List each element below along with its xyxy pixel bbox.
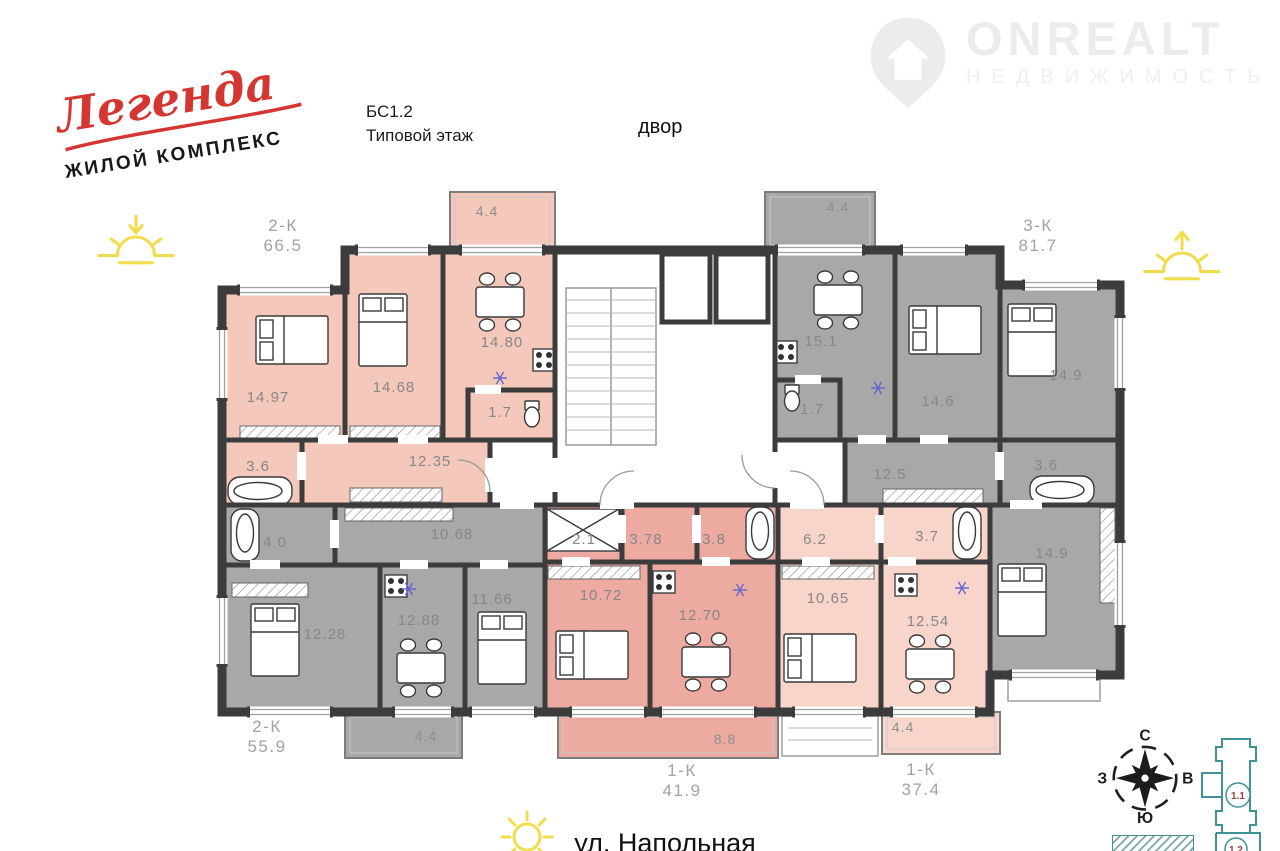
- door-opening: [920, 435, 948, 444]
- bed-v-furniture-icon: [998, 564, 1046, 636]
- room-area-label: 14.9: [1035, 545, 1068, 562]
- stove-icon: [385, 575, 407, 597]
- window: [795, 707, 863, 718]
- entrance-porch: [782, 716, 878, 756]
- door-opening: [617, 515, 626, 543]
- bath-v-furniture-icon: [746, 507, 774, 559]
- wc-furniture-icon: [785, 385, 800, 411]
- window: [462, 245, 542, 256]
- room-area-label: 6.2: [803, 531, 827, 548]
- block-label: БС1.2: [366, 100, 473, 124]
- door-opening: [858, 435, 886, 444]
- onrealt-watermark: ONREALT НЕДВИЖИМОСТЬ: [862, 14, 1271, 112]
- apartment-total-area-label: 55.9: [247, 737, 286, 756]
- door-opening: [600, 500, 634, 509]
- window: [778, 245, 862, 256]
- wc-furniture-icon: [525, 401, 540, 427]
- balcony-area-label: 4.4: [476, 203, 498, 219]
- room-area-label: 12.70: [679, 607, 722, 624]
- bed-v-furniture-icon: [359, 294, 407, 366]
- window: [358, 245, 428, 256]
- apartment-total-area-label: 81.7: [1018, 236, 1057, 255]
- room-area-label: 1.7: [488, 404, 512, 421]
- door-opening: [250, 560, 280, 569]
- door-swing-arc: [790, 471, 824, 505]
- bed-v-furniture-icon: [478, 612, 526, 684]
- door-opening: [790, 500, 824, 509]
- wardrobe-hatch: [345, 508, 453, 521]
- apartment-type-label: 1-К: [667, 761, 697, 780]
- bed-h-furniture-icon: [256, 316, 328, 364]
- sun-south-icon: [494, 806, 560, 851]
- site-neighbour-block: [1112, 835, 1194, 851]
- window: [903, 245, 965, 256]
- room-area-label: 12.5: [873, 466, 906, 483]
- door-opening: [400, 560, 428, 569]
- room-area-label: 14.80: [481, 334, 524, 351]
- room-area-label: 11.66: [471, 591, 512, 608]
- bath-v-furniture-icon: [231, 509, 259, 561]
- wardrobe-hatch: [232, 583, 308, 597]
- door-opening: [398, 435, 428, 444]
- rear-balcony-ledge: [1008, 679, 1100, 701]
- site-section-next: 1.2: [1229, 845, 1243, 851]
- room-area-label: 14.6: [921, 393, 954, 410]
- door-opening: [500, 500, 534, 509]
- apartment-total-area-label: 66.5: [263, 236, 302, 255]
- bed-h-furniture-icon: [909, 306, 981, 354]
- room-area-label: 14.68: [373, 379, 416, 396]
- apartment-type-label: 2-К: [268, 216, 298, 235]
- courtyard-label: двор: [638, 116, 682, 139]
- room-area-label: 2.1: [572, 531, 596, 548]
- balcony-area-label: 8.8: [714, 731, 736, 747]
- door-opening: [330, 520, 339, 548]
- door-opening: [1010, 500, 1042, 509]
- room-area-label: 3.6: [1034, 457, 1058, 474]
- room-area-label: 10.65: [807, 590, 850, 607]
- window: [1115, 318, 1126, 388]
- door-opening: [995, 452, 1004, 480]
- floor-type-label: Типовой этаж: [366, 124, 473, 148]
- room-area-label: 12.35: [409, 453, 452, 470]
- apartment-total-area-label: 41.9: [662, 781, 701, 800]
- floorplan-page: 14.9714.6814.801.712.353.64.42-К66.515.1…: [0, 0, 1280, 851]
- onrealt-pin-icon: [862, 14, 954, 112]
- sunset-west-icon: [96, 204, 176, 270]
- stove-icon: [775, 341, 797, 363]
- room-area-label: 3.78: [629, 531, 662, 548]
- wardrobe-hatch: [548, 566, 640, 579]
- street-label: ул. Напольная: [520, 828, 810, 851]
- window: [893, 707, 975, 718]
- door-opening: [480, 560, 508, 569]
- balcony-2k-55: [345, 712, 462, 758]
- apartment-total-area-label: 37.4: [901, 780, 940, 799]
- sunrise-east-icon: [1142, 220, 1222, 286]
- door-opening: [692, 515, 701, 543]
- room-area-label: 10.72: [580, 587, 623, 604]
- bath-h-furniture-icon: [228, 477, 292, 505]
- room-area-label: 14.97: [247, 389, 290, 406]
- bed-v-furniture-icon: [251, 604, 299, 676]
- wardrobe-hatch: [782, 566, 874, 579]
- window: [572, 707, 644, 718]
- window: [217, 330, 228, 398]
- door-opening: [875, 515, 884, 543]
- door-opening: [475, 385, 501, 394]
- door-opening: [550, 458, 559, 492]
- site-key-plan: 1.1 1.2: [1192, 737, 1280, 851]
- door-opening: [888, 557, 916, 566]
- balcony-area-label: 4.4: [892, 719, 914, 735]
- bed-h-furniture-icon: [556, 631, 628, 679]
- window: [240, 285, 330, 296]
- wardrobe-hatch: [1100, 508, 1115, 603]
- window: [1115, 543, 1126, 625]
- room-area-label: 3.6: [246, 458, 270, 475]
- window: [395, 707, 451, 718]
- balcony-3k-81: [765, 192, 875, 250]
- door-opening: [318, 435, 348, 444]
- stove-icon: [653, 571, 675, 593]
- bath-v-furniture-icon: [953, 507, 981, 559]
- compass-rose: С В Ю З: [1095, 724, 1195, 824]
- elevator-shaft: [662, 254, 710, 322]
- bed-h-furniture-icon: [784, 634, 856, 682]
- apartment-type-label: 2-К: [252, 717, 282, 736]
- room-area-label: 12.88: [398, 612, 441, 629]
- plan-info: БС1.2 Типовой этаж: [366, 100, 473, 148]
- bath-h-furniture-icon: [1030, 476, 1094, 504]
- stove-icon: [533, 349, 555, 371]
- room-area-label: 12.28: [304, 626, 347, 643]
- apartment-type-label: 1-К: [906, 760, 936, 779]
- watermark-subtitle: НЕДВИЖИМОСТЬ: [966, 66, 1271, 89]
- window: [217, 598, 228, 664]
- door-opening: [795, 375, 821, 384]
- room-area-label: 4.0: [263, 534, 287, 551]
- room-area-label: 15.1: [804, 333, 837, 350]
- watermark-brand: ONREALT: [966, 14, 1271, 63]
- compass-north: С: [1139, 728, 1150, 745]
- door-opening: [702, 557, 730, 566]
- stove-icon: [895, 574, 917, 596]
- site-section-current: 1.1: [1231, 791, 1245, 802]
- wardrobe-hatch: [350, 488, 442, 502]
- room-area-label: 3.8: [702, 531, 726, 548]
- window: [472, 707, 534, 718]
- room-area-label: 14.9: [1049, 367, 1082, 384]
- window: [662, 707, 754, 718]
- balcony-2k-66: [450, 192, 555, 250]
- wardrobe-hatch: [883, 489, 983, 504]
- balcony-1k-41: [558, 712, 778, 758]
- door-swing-arc: [600, 471, 634, 505]
- apartment-type-label: 3-К: [1023, 216, 1053, 235]
- room-area-label: 3.7: [915, 528, 939, 545]
- door-opening: [770, 452, 779, 488]
- window: [1012, 670, 1096, 681]
- balcony-area-label: 4.4: [415, 728, 437, 744]
- room-area-label: 1.7: [800, 401, 824, 418]
- room-area-label: 12.54: [907, 613, 950, 630]
- door-opening: [562, 557, 590, 566]
- bed-v-furniture-icon: [1008, 304, 1056, 376]
- door-opening: [802, 557, 830, 566]
- door-opening: [297, 452, 306, 480]
- compass-west: З: [1097, 770, 1107, 787]
- elevator-shaft: [716, 254, 768, 322]
- window: [1025, 280, 1097, 291]
- window: [250, 707, 330, 718]
- compass-south: Ю: [1137, 810, 1153, 824]
- balcony-area-label: 4.4: [827, 199, 849, 215]
- room-area-label: 10.68: [431, 526, 474, 543]
